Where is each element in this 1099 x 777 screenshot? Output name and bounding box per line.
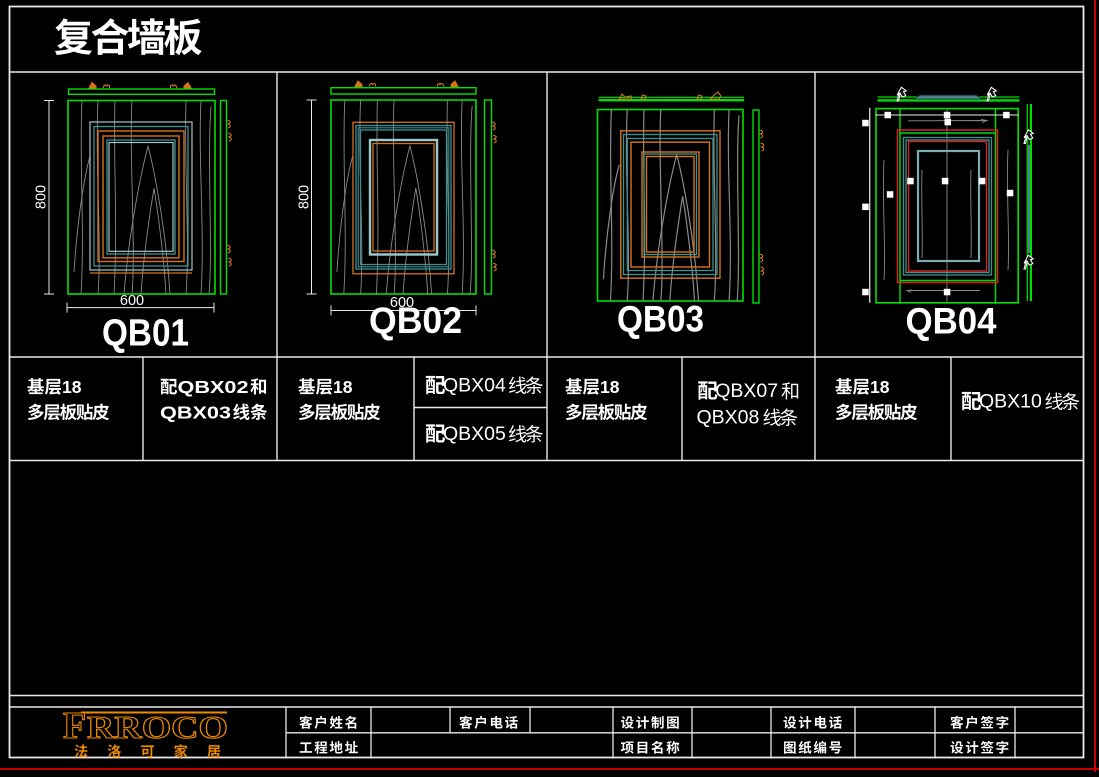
svg-text:RROCO: RROCO — [87, 709, 228, 745]
svg-text:QBX10: QBX10 — [979, 391, 1042, 413]
svg-text:QB02: QB02 — [369, 300, 462, 341]
svg-text:F: F — [63, 705, 86, 747]
svg-text:QB03: QB03 — [617, 299, 704, 340]
svg-text:QBX04: QBX04 — [443, 375, 506, 397]
svg-text:QBX07: QBX07 — [715, 380, 778, 402]
svg-text:18: 18 — [600, 377, 620, 397]
svg-text:18: 18 — [62, 377, 82, 397]
svg-text:QBX08: QBX08 — [697, 407, 760, 429]
svg-text:QBX05: QBX05 — [443, 423, 506, 445]
svg-text:QB04: QB04 — [906, 301, 997, 342]
svg-text:QB01: QB01 — [102, 313, 189, 355]
svg-text:QBX03: QBX03 — [160, 403, 231, 423]
svg-text:18: 18 — [333, 377, 353, 397]
svg-text:600: 600 — [120, 293, 144, 309]
svg-text:800: 800 — [34, 185, 50, 209]
svg-text:800: 800 — [297, 185, 313, 209]
svg-text:QBX02: QBX02 — [178, 377, 249, 397]
svg-text:18: 18 — [870, 377, 890, 397]
